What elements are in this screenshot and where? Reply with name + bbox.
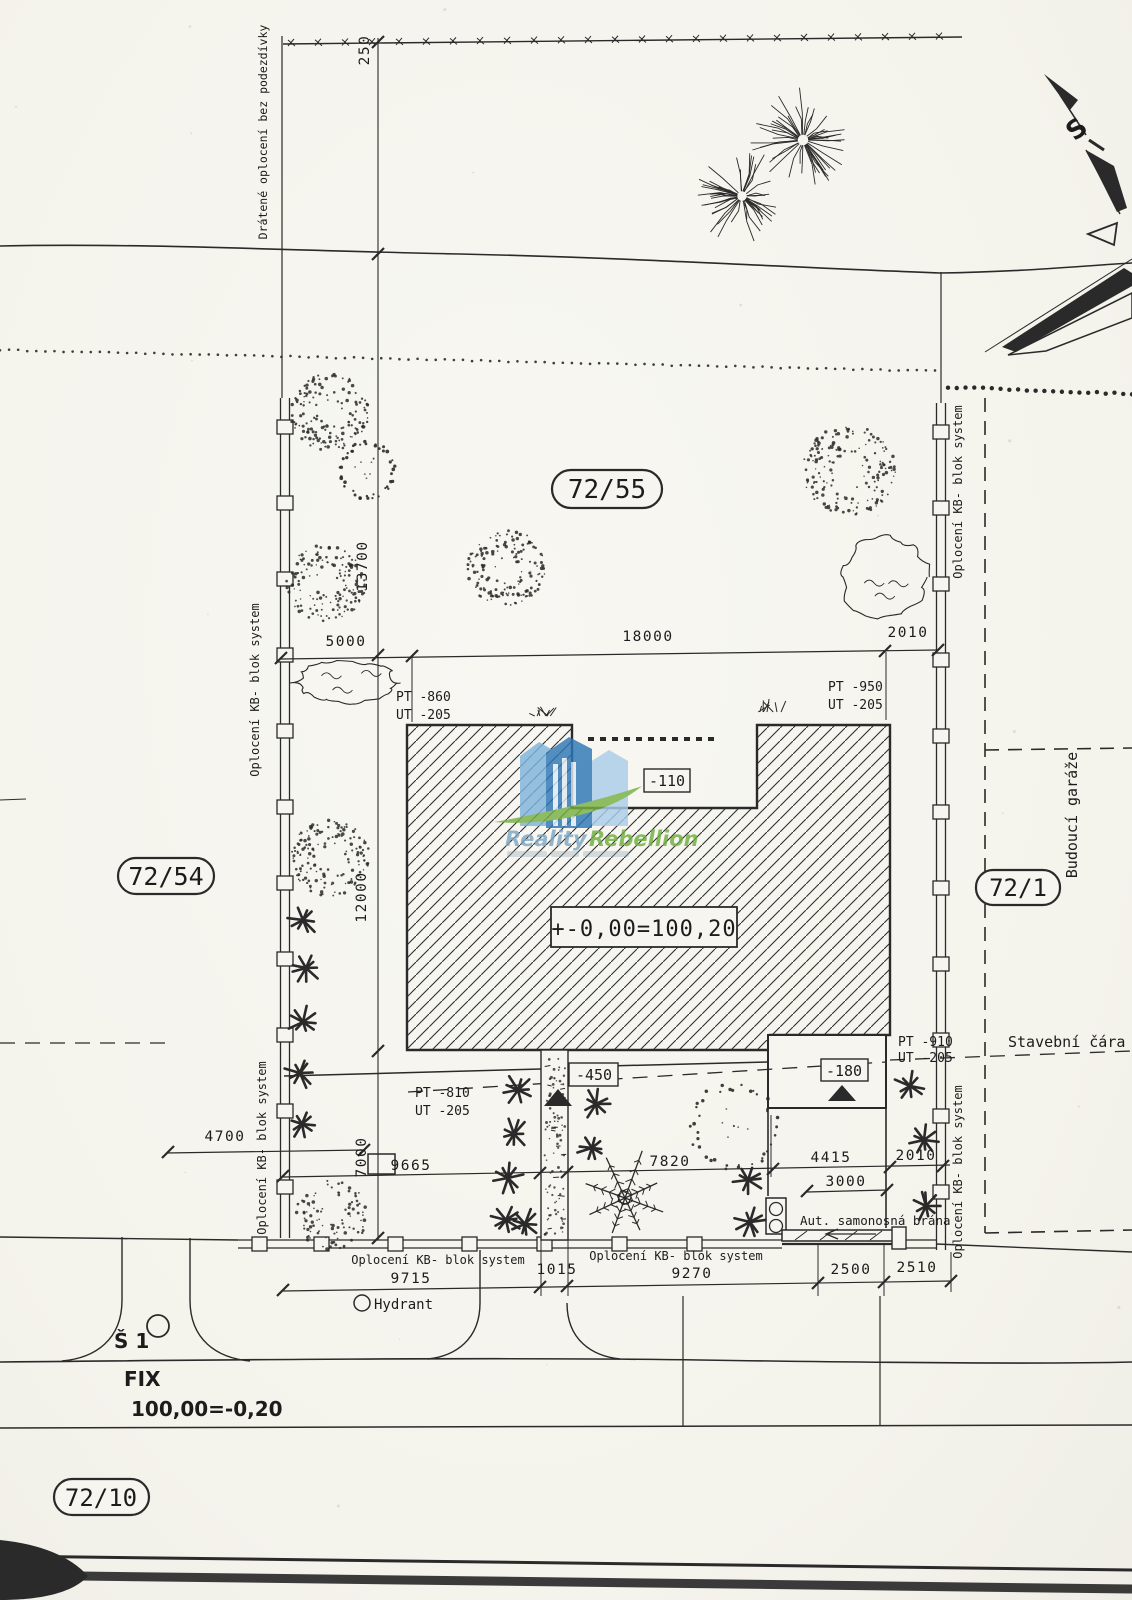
watermark-word-1: Reality [505,827,588,851]
parcel-label-72-54: 72/54 [128,862,203,891]
scan-mark [0,799,26,800]
north-bar [1089,140,1104,150]
terrace-dashed-edge [588,737,714,741]
spot-level-pt-br: PT -910 [898,1035,953,1050]
dim-top-offset: 250 [357,35,373,66]
dim-depth-mid: 12000 [354,871,370,922]
building-line-label: Stavební čára [1008,1033,1125,1051]
road-dotted-line [0,348,1132,396]
hydrant-icon [354,1295,370,1311]
hydrant-label: Hydrant [374,1297,433,1313]
front-terrace-edge-left [284,1069,541,1076]
watermark-tagline-blur [551,851,579,857]
road-edge-upper [0,245,1132,273]
road-edge-mid [0,1359,1132,1363]
dim-line-street [283,1281,951,1291]
parcel-label-72-1: 72/1 [989,874,1047,902]
dim-street-5: 2510 [897,1260,938,1276]
scan-band [0,1575,1132,1589]
left-driveway-flares [62,1300,250,1361]
north-open-arrow [1088,223,1117,245]
spot-level-pt-tr: PT -950 [828,680,883,695]
north-label: S [1060,112,1093,147]
verge-line-right [936,1244,1132,1252]
spot-level-ut-tr: UT -205 [828,698,883,713]
parcel-label-72-10: 72/10 [65,1484,137,1512]
kb-fence-label-left-upper: Oplocení KB- blok system [248,603,262,776]
garage-level-label: -180 [826,1062,862,1080]
dim-front-right: 2010 [888,625,929,641]
verge-line-left [0,1237,238,1240]
dim-street-3: 9270 [672,1266,713,1282]
scan-blob [0,1540,88,1600]
dim-street-1: 9715 [391,1271,432,1287]
left-driveway-edges [122,1237,190,1300]
watermark-wordmark: Reality Rebellion [505,827,699,851]
site-plan-drawing: S +-0,00=100,20 -110 -450 -180 PT -860 [0,0,1132,1600]
watermark-logo: Reality Rebellion [494,737,699,857]
north-long-edge [985,259,1132,352]
future-garages-label: Budoucí garáže [1063,752,1081,878]
wire-fence-line [283,37,962,44]
dim-gate-width: 3000 [826,1174,867,1190]
north-arrow-icon [1044,74,1078,110]
parcel-label-72-55: 72/55 [568,475,646,505]
garage-boundary-top [985,748,1132,750]
manhole-label: Š 1 [114,1329,149,1353]
north-blade-south-outline [1008,293,1132,355]
watermark-word-2: Rebellion [589,827,699,851]
kb-fence-label-left-lower: Oplocení KB- blok system [255,1061,269,1234]
dim-rear-2: 7820 [650,1154,691,1170]
dim-side-offset: 4700 [205,1129,246,1145]
manhole-icon [147,1315,169,1337]
gate-end-post [892,1227,906,1249]
scan-line [0,1556,1132,1570]
fix-level-label: 100,00=-0,20 [131,1397,283,1421]
spot-level-ut-br: UT -205 [898,1051,953,1066]
wire-fence-label: Drátené oplocení bez podezdívky [256,25,270,240]
dim-street-4: 2500 [831,1262,872,1278]
wire-fence-marks [288,33,943,46]
north-arrow: S [985,74,1132,355]
zero-level-label: +-0,00=100,20 [551,917,736,942]
spot-level-ut-tl: UT -205 [396,708,451,723]
north-blade-upper [1086,150,1127,212]
kb-fence-label-right-upper: Oplocení KB- blok system [951,405,965,578]
north-blade-south [1002,268,1132,352]
road-edge-lower [0,1425,1132,1428]
terrace-level-label: -110 [649,772,685,790]
fix-label: FIX [124,1367,161,1391]
garage-boundary-bottom [985,1230,1132,1233]
spot-level-pt-bl: PT -810 [415,1086,470,1101]
watermark-house-right [590,750,628,826]
site-plan-scan: S +-0,00=100,20 -110 -450 -180 PT -860 [0,0,1132,1600]
dim-depth-lower: 7000 [354,1137,370,1178]
kb-fence-label-street-left: Oplocení KB- blok system [351,1253,524,1267]
spot-level-ut-bl: UT -205 [415,1104,470,1119]
kb-fence-label-street-right: Oplocení KB- blok system [589,1249,762,1263]
spot-level-pt-tl: PT -860 [396,690,451,705]
dim-street-2: 1015 [537,1262,578,1278]
annotations: Drátené oplocení bez podezdívky Oplocení… [248,25,1125,1267]
dim-rear-1: 9665 [391,1158,432,1174]
dim-rear-3: 4415 [811,1150,852,1166]
kb-fence-label-right-lower: Oplocení KB- blok system [951,1085,965,1258]
watermark-tagline-blur [507,851,547,857]
dim-line-gate [807,1190,887,1192]
dim-front-left: 5000 [326,634,367,650]
watermark-tagline-blur [583,851,629,857]
dim-front-main: 18000 [622,629,673,645]
entry-level-label: -450 [576,1066,612,1084]
